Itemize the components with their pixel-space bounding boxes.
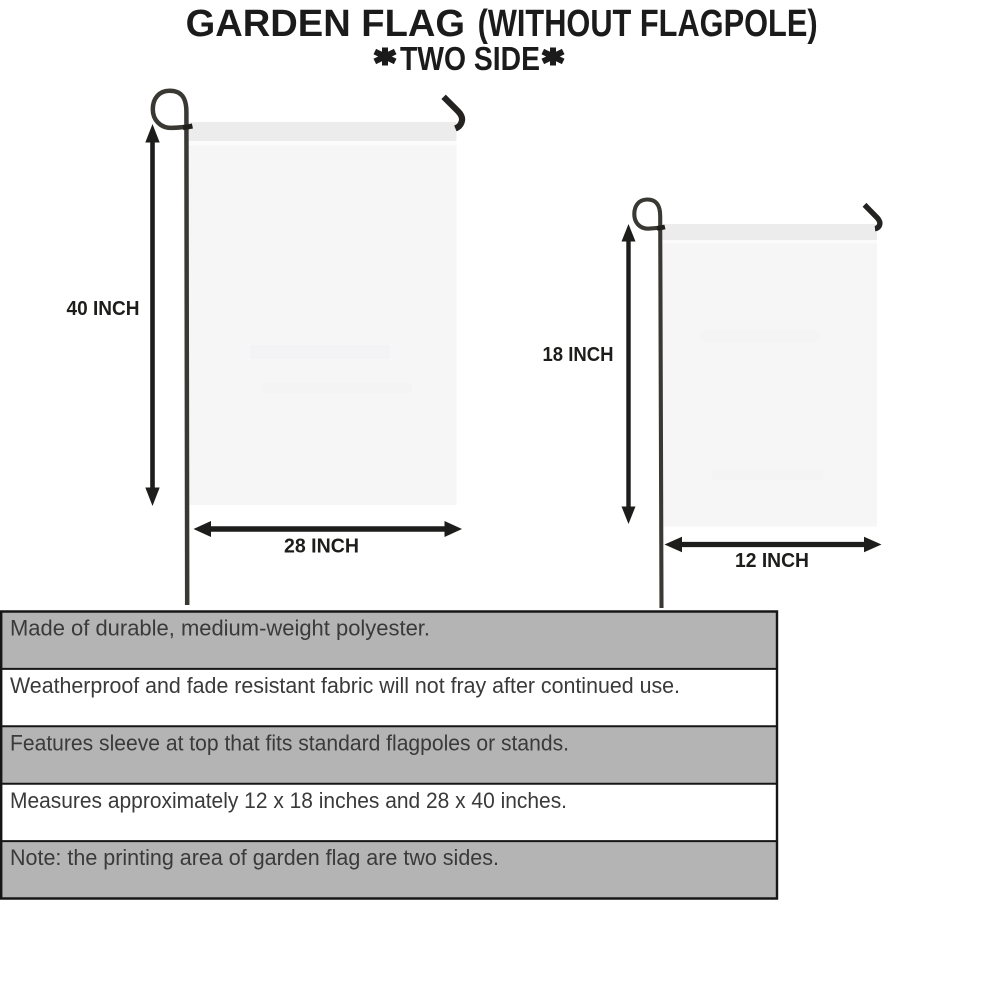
svg-text:Features sleeve at top that fi: Features sleeve at top that fits standar… xyxy=(10,730,569,755)
svg-text:40 INCH: 40 INCH xyxy=(67,298,140,320)
svg-text:Note: the printing area of gar: Note: the printing area of garden flag a… xyxy=(10,845,499,870)
svg-text:28 INCH: 28 INCH xyxy=(284,536,359,558)
svg-text:Measures approximately 12 x 18: Measures approximately 12 x 18 inches an… xyxy=(10,788,567,813)
svg-text:GARDEN FLAG(WITHOUT FLAGPOLE): GARDEN FLAG(WITHOUT FLAGPOLE) xyxy=(186,3,818,45)
svg-text:18 INCH: 18 INCH xyxy=(543,344,614,366)
svg-text:TWO SIDE: TWO SIDE xyxy=(400,40,540,77)
svg-text:Weatherproof and fade resistan: Weatherproof and fade resistant fabric w… xyxy=(10,673,680,698)
svg-text:12 INCH: 12 INCH xyxy=(735,550,809,572)
svg-text:Made of durable, medium-weight: Made of durable, medium-weight polyester… xyxy=(10,616,430,641)
